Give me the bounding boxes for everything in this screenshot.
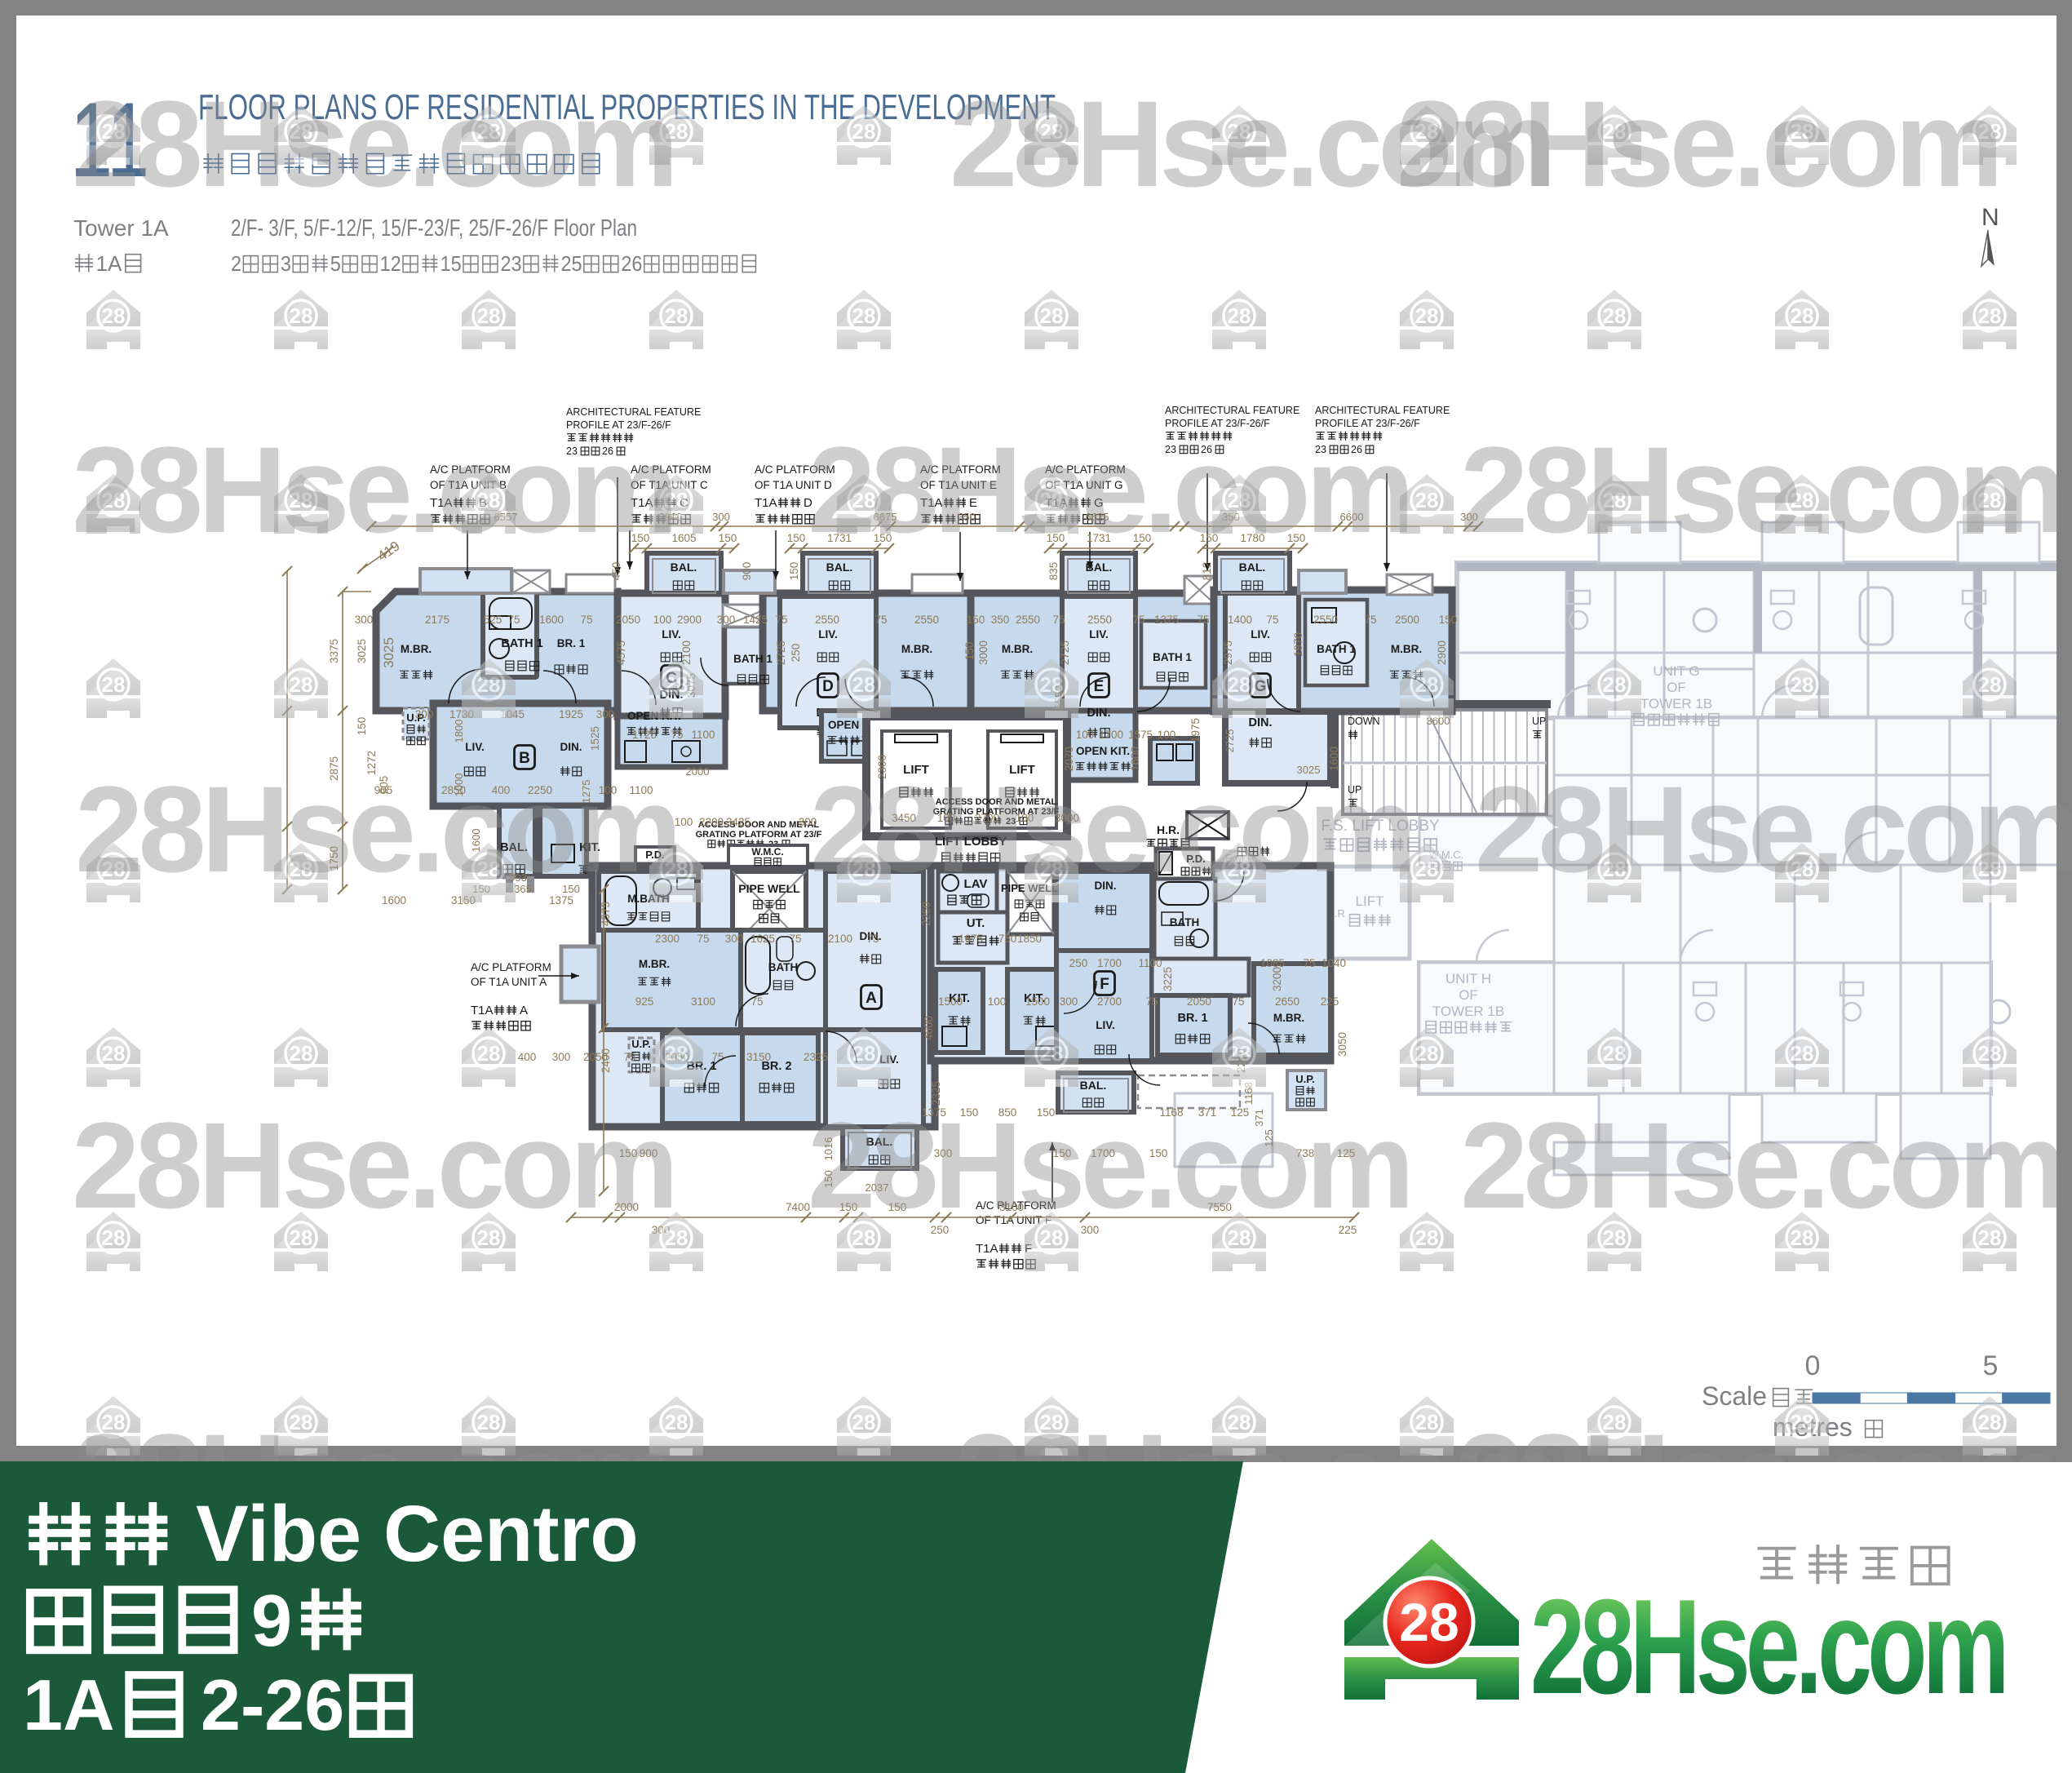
svg-text:TOWER 1B: TOWER 1B (1432, 1004, 1504, 1019)
svg-text:1700: 1700 (1097, 957, 1122, 969)
svg-text:W.M.C.: W.M.C. (751, 846, 783, 858)
svg-text:75: 75 (866, 933, 879, 945)
svg-text:U.P.: U.P. (1295, 1073, 1315, 1085)
svg-text:300: 300 (355, 614, 374, 626)
svg-text:BATH: BATH (768, 961, 799, 973)
svg-text:75: 75 (1232, 995, 1244, 1008)
svg-text:2900: 2900 (1436, 640, 1448, 665)
svg-text:2550: 2550 (1016, 614, 1040, 626)
svg-text:3050: 3050 (1336, 1032, 1348, 1057)
svg-text:2325: 2325 (804, 1051, 828, 1063)
svg-text:75: 75 (1266, 614, 1278, 626)
svg-text:350: 350 (991, 614, 1010, 626)
svg-text:835: 835 (1047, 562, 1060, 581)
svg-text:2250: 2250 (920, 902, 932, 926)
svg-text:2725: 2725 (1224, 729, 1236, 753)
svg-text:5: 5 (1983, 1350, 1999, 1381)
svg-text:BAL.: BAL. (671, 561, 697, 574)
svg-text:150: 150 (356, 717, 368, 736)
svg-text:M.BR.: M.BR. (401, 643, 432, 655)
svg-text:LIV.: LIV. (818, 628, 838, 640)
svg-text:BR. 1: BR. 1 (1177, 1012, 1207, 1025)
svg-text:300: 300 (717, 614, 736, 626)
svg-text:M.BR.: M.BR. (1273, 1012, 1304, 1024)
svg-text:3025: 3025 (356, 639, 368, 663)
svg-text:3150: 3150 (746, 1051, 771, 1063)
svg-text:ARCHITECTURAL FEATURE: ARCHITECTURAL FEATURE (1165, 405, 1299, 416)
svg-text:BATH 1: BATH 1 (1317, 643, 1356, 655)
svg-text:2000: 2000 (686, 765, 710, 778)
svg-text:2050: 2050 (583, 1051, 608, 1063)
svg-text:DIN.: DIN. (560, 741, 582, 753)
svg-text:TOWER 1B: TOWER 1B (1640, 696, 1712, 711)
svg-text:UNIT H: UNIT H (1446, 971, 1491, 986)
svg-text:12: 12 (380, 253, 401, 276)
svg-text:75: 75 (1052, 614, 1065, 626)
svg-text:28Hse.com: 28Hse.com (1530, 1571, 2005, 1722)
svg-text:U.P.: U.P. (631, 1038, 651, 1050)
svg-text:F: F (1100, 976, 1109, 993)
svg-text:28Hse.com: 28Hse.com (1460, 421, 2062, 558)
svg-text:2-26: 2-26 (201, 1664, 344, 1745)
svg-text:300: 300 (415, 708, 434, 720)
svg-text:100: 100 (653, 614, 672, 626)
svg-text:Tower 1A: Tower 1A (73, 215, 169, 241)
svg-text:75: 75 (1132, 614, 1144, 626)
svg-text:28Hse.com: 28Hse.com (75, 760, 677, 898)
svg-text:2/F- 3/F, 5/F-12/F, 15/F-23/F,: 2/F- 3/F, 5/F-12/F, 15/F-23/F, 25/F-26/F… (231, 215, 637, 242)
svg-text:400: 400 (518, 1051, 537, 1063)
svg-text:1925: 1925 (559, 708, 583, 720)
svg-text:75: 75 (775, 614, 787, 626)
svg-text:25: 25 (560, 253, 582, 276)
svg-text:75: 75 (507, 614, 520, 626)
svg-text:150: 150 (963, 642, 976, 661)
svg-text:BATH 1: BATH 1 (1153, 651, 1192, 663)
svg-text:OF: OF (1459, 987, 1478, 1003)
svg-text:28: 28 (1399, 1592, 1459, 1652)
svg-text:1700: 1700 (1099, 729, 1123, 741)
svg-text:UNIT G: UNIT G (1653, 663, 1699, 679)
svg-text:300: 300 (1060, 995, 1078, 1008)
svg-text:100: 100 (988, 995, 1007, 1008)
svg-text:300: 300 (725, 933, 744, 945)
svg-text:LIV.: LIV. (1089, 628, 1109, 640)
svg-text:T1A: T1A (471, 1004, 494, 1017)
svg-text:75: 75 (1303, 957, 1315, 969)
svg-text:T1A: T1A (755, 496, 777, 510)
svg-text:100: 100 (1158, 729, 1176, 741)
svg-text:UT.: UT. (967, 916, 985, 930)
svg-text:D: D (822, 678, 834, 695)
svg-text:450: 450 (610, 562, 622, 581)
svg-text:7400: 7400 (786, 1201, 810, 1213)
svg-text:1850: 1850 (1017, 933, 1042, 945)
svg-text:BAL.: BAL. (1080, 1079, 1107, 1092)
svg-text:1975: 1975 (1189, 718, 1202, 742)
svg-text:28Hse.com: 28Hse.com (72, 1097, 674, 1234)
svg-text:3025: 3025 (381, 637, 396, 668)
svg-text:3425: 3425 (726, 816, 750, 828)
svg-text:2550: 2550 (914, 614, 939, 626)
svg-text:ARCHITECTURAL FEATURE: ARCHITECTURAL FEATURE (566, 406, 701, 418)
svg-text:DOWN: DOWN (1348, 716, 1380, 727)
svg-text:925: 925 (635, 995, 654, 1008)
svg-text:1675: 1675 (959, 933, 983, 945)
svg-text:4575: 4575 (600, 902, 612, 926)
svg-text:2200: 2200 (699, 816, 724, 828)
svg-text:75: 75 (580, 614, 592, 626)
svg-text:28Hse.com: 28Hse.com (72, 421, 674, 558)
svg-text:75: 75 (1145, 995, 1158, 1008)
svg-text:3200: 3200 (1271, 967, 1283, 991)
svg-text:1A: 1A (96, 251, 122, 276)
svg-text:A/C PLATFORM: A/C PLATFORM (471, 961, 551, 973)
svg-text:M.BR.: M.BR. (639, 958, 670, 970)
svg-text:2500: 2500 (1395, 614, 1419, 626)
svg-text:75: 75 (623, 1051, 635, 1063)
svg-text:2050: 2050 (1187, 995, 1211, 1008)
svg-text:15: 15 (441, 253, 462, 276)
svg-text:28Hse.com: 28Hse.com (808, 1097, 1410, 1234)
svg-text:28Hse.com: 28Hse.com (1397, 75, 1999, 212)
svg-text:BATH: BATH (1170, 916, 1200, 929)
svg-text:150: 150 (719, 532, 737, 544)
svg-text:1605: 1605 (671, 532, 696, 544)
svg-text:A: A (866, 990, 877, 1007)
svg-text:9: 9 (251, 1580, 292, 1662)
svg-text:150: 150 (1439, 614, 1458, 626)
svg-text:4575: 4575 (615, 640, 627, 665)
svg-text:1500: 1500 (1025, 995, 1050, 1008)
svg-text:900: 900 (741, 562, 753, 581)
svg-text:4600: 4600 (923, 1016, 935, 1040)
svg-text:1085: 1085 (1260, 957, 1285, 969)
svg-text:2550: 2550 (815, 614, 839, 626)
svg-text:1425: 1425 (743, 614, 768, 626)
svg-text:2100: 2100 (680, 640, 693, 665)
svg-text:BATH 1: BATH 1 (733, 653, 773, 665)
svg-text:2900: 2900 (677, 614, 702, 626)
svg-text:1A: 1A (23, 1664, 115, 1745)
svg-text:23: 23 (501, 253, 522, 276)
svg-text:A: A (520, 1004, 528, 1017)
svg-text:150: 150 (788, 562, 800, 581)
svg-text:T1A: T1A (976, 1242, 998, 1256)
svg-text:2550: 2550 (1087, 614, 1112, 626)
svg-text:1375: 1375 (1154, 614, 1179, 626)
svg-text:3100: 3100 (691, 995, 715, 1008)
svg-text:3225: 3225 (1162, 967, 1174, 991)
svg-text:75: 75 (697, 933, 709, 945)
svg-text:OPEN KIT.: OPEN KIT. (1076, 745, 1130, 757)
svg-text:75: 75 (874, 614, 887, 626)
svg-text:2550: 2550 (1313, 614, 1338, 626)
svg-text:OF T1A UNIT A: OF T1A UNIT A (471, 976, 547, 988)
svg-text:2975: 2975 (1222, 640, 1234, 665)
svg-text:2100: 2100 (828, 933, 852, 945)
svg-text:ARCHITECTURAL FEATURE: ARCHITECTURAL FEATURE (1315, 405, 1450, 416)
svg-text:2050: 2050 (616, 614, 640, 626)
svg-text:BAL.: BAL. (826, 561, 853, 574)
svg-text:750: 750 (998, 933, 1017, 945)
svg-text:2725: 2725 (775, 640, 787, 665)
svg-text:150: 150 (967, 614, 985, 626)
svg-text:M.BR.: M.BR. (1391, 643, 1422, 655)
svg-text:1040: 1040 (1322, 957, 1346, 969)
svg-text:LIV.: LIV. (662, 628, 681, 640)
svg-text:1100: 1100 (691, 729, 715, 741)
svg-text:250: 250 (1069, 957, 1088, 969)
svg-text:75: 75 (789, 933, 801, 945)
svg-text:1575: 1575 (1128, 729, 1153, 741)
svg-text:DIN.: DIN. (1087, 707, 1111, 720)
svg-text:LIV.: LIV. (1251, 628, 1270, 640)
svg-text:DIN.: DIN. (1249, 716, 1273, 729)
svg-text:28Hse.com: 28Hse.com (810, 760, 1412, 898)
svg-text:150: 150 (787, 532, 806, 544)
svg-text:PIPE WELL: PIPE WELL (738, 882, 800, 895)
svg-text:250: 250 (790, 644, 802, 663)
svg-text:2: 2 (231, 253, 241, 276)
svg-text:3375: 3375 (328, 639, 340, 663)
svg-text:M.BR.: M.BR. (901, 643, 932, 655)
svg-text:100: 100 (1076, 729, 1095, 741)
svg-text:28Hse.com: 28Hse.com (808, 421, 1410, 558)
svg-text:1625: 1625 (750, 933, 775, 945)
svg-text:OF: OF (1667, 680, 1686, 695)
svg-text:2300: 2300 (655, 933, 680, 945)
svg-text:3: 3 (281, 253, 291, 276)
svg-text:2700: 2700 (1097, 995, 1122, 1008)
svg-text:75: 75 (1364, 614, 1376, 626)
svg-text:UP: UP (1532, 716, 1546, 727)
svg-text:M.BR.: M.BR. (1002, 643, 1033, 655)
svg-text:1725: 1725 (632, 729, 657, 741)
svg-text:2650: 2650 (1275, 995, 1299, 1008)
svg-text:BAL.: BAL. (1239, 561, 1266, 574)
svg-text:0: 0 (1805, 1350, 1821, 1381)
svg-text:1525: 1525 (589, 726, 601, 751)
svg-text:1400: 1400 (1228, 614, 1252, 626)
svg-text:300: 300 (552, 1051, 571, 1063)
svg-text:812: 812 (1201, 562, 1213, 581)
svg-text:1800: 1800 (453, 720, 465, 743)
svg-text:BATH 1: BATH 1 (501, 637, 542, 650)
svg-text:300: 300 (596, 708, 615, 720)
svg-text:Scale: Scale (1702, 1381, 1767, 1411)
svg-text:LIV.: LIV. (1096, 1019, 1115, 1031)
svg-text:1600: 1600 (539, 614, 564, 626)
svg-text:525: 525 (484, 614, 503, 626)
svg-text:75: 75 (671, 729, 683, 741)
svg-text:28Hse.com: 28Hse.com (1475, 760, 2072, 898)
svg-text:26: 26 (621, 253, 642, 276)
svg-text:3000: 3000 (977, 640, 990, 665)
svg-text:Vibe Centro: Vibe Centro (196, 1489, 639, 1578)
svg-text:28Hse.com: 28Hse.com (72, 75, 674, 212)
svg-text:5: 5 (330, 253, 341, 276)
svg-text:1970: 1970 (1292, 632, 1304, 657)
svg-text:GRATING PLATFORM AT 23/F: GRATING PLATFORM AT 23/F (696, 830, 822, 840)
svg-text:28Hse.com: 28Hse.com (1460, 1097, 2062, 1234)
svg-text:300: 300 (712, 511, 730, 523)
svg-text:1100: 1100 (1138, 957, 1162, 969)
svg-text:225: 225 (1321, 995, 1339, 1008)
svg-text:2725: 2725 (1059, 640, 1071, 665)
svg-text:2175: 2175 (425, 614, 449, 626)
svg-text:75: 75 (1197, 614, 1209, 626)
svg-text:BR. 1: BR. 1 (557, 637, 586, 649)
svg-text:LIV.: LIV. (465, 741, 485, 753)
svg-text:1500: 1500 (938, 995, 963, 1008)
